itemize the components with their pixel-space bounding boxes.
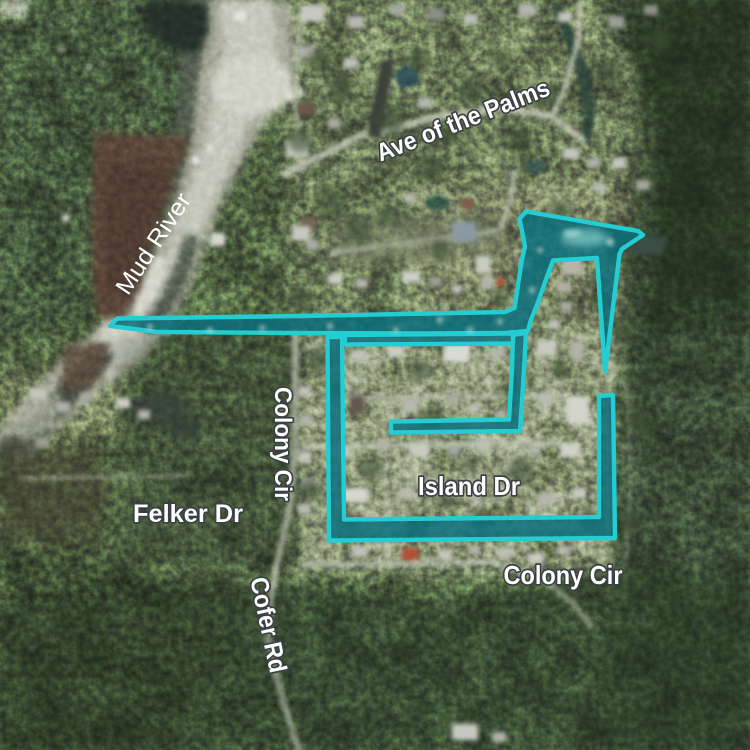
svg-text:Island Dr: Island Dr [418, 471, 520, 501]
svg-text:Felker Dr: Felker Dr [133, 500, 243, 528]
svg-text:Colony Cir: Colony Cir [504, 560, 623, 590]
svg-text:Colony Cir: Colony Cir [269, 387, 296, 501]
